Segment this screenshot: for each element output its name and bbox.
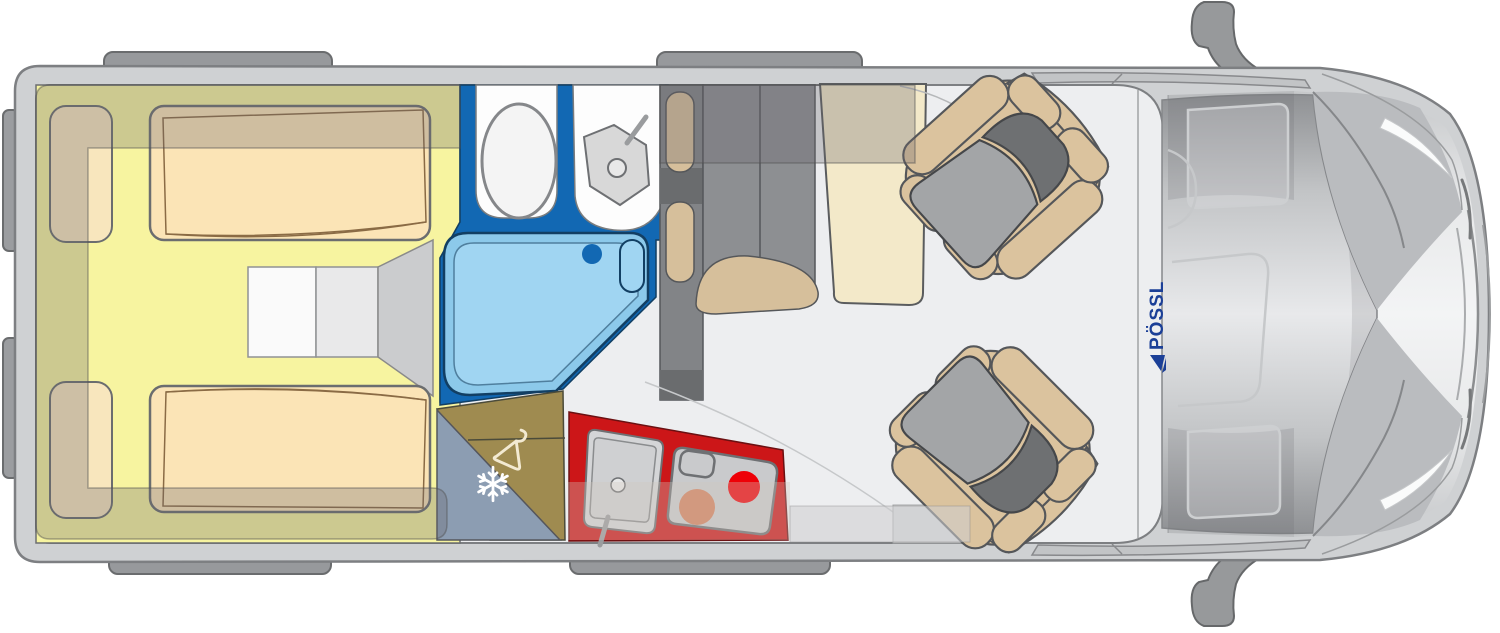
svg-text:PÖSSL: PÖSSL bbox=[1147, 281, 1168, 350]
